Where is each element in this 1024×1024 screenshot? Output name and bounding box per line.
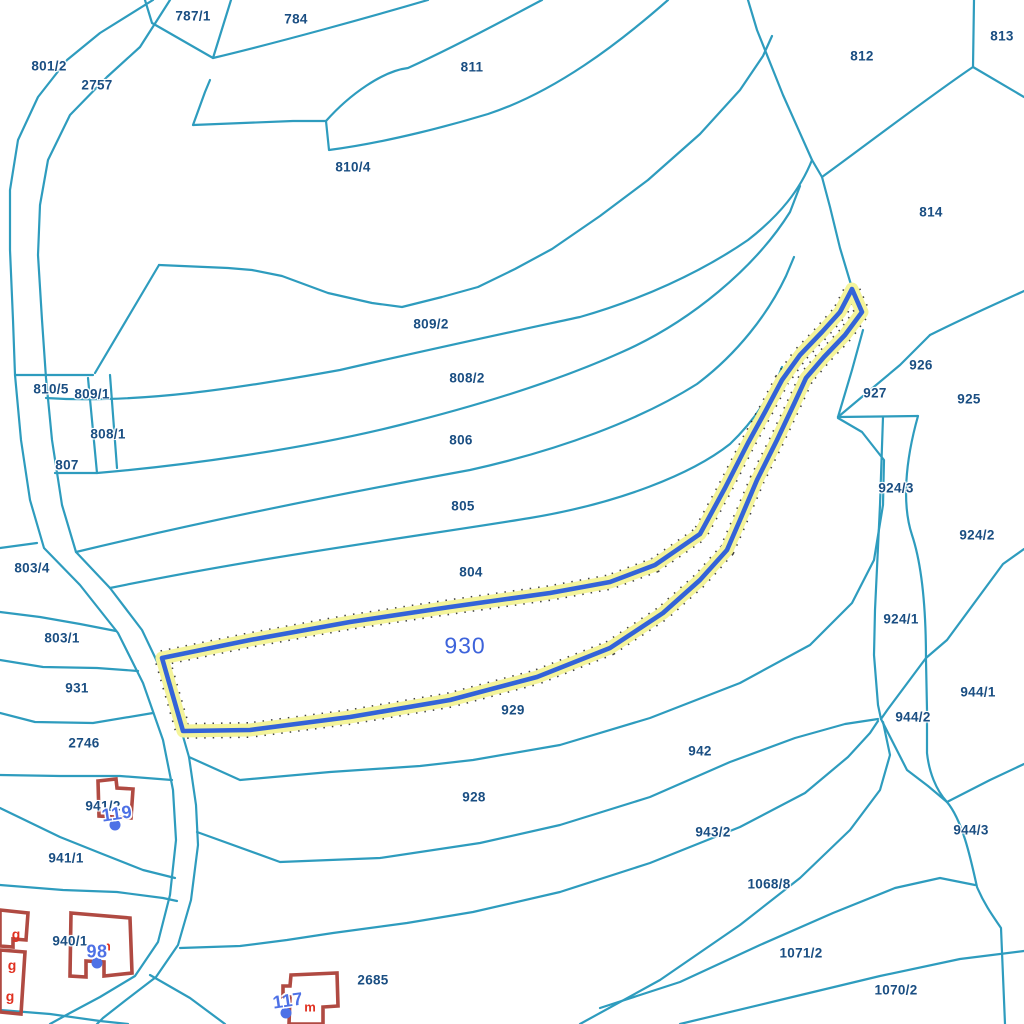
road-left-edge: [10, 0, 176, 1024]
parcel-boundary: [973, 0, 974, 67]
parcel-boundary: [159, 36, 772, 307]
parcel-boundary: [180, 721, 878, 948]
parcel-boundary-lines: [0, 0, 1024, 1024]
building-footprint: [0, 950, 25, 1014]
building-footprint: [283, 973, 338, 1024]
parcel-boundary: [0, 543, 37, 548]
parcel-boundary: [0, 713, 153, 723]
parcel-boundary: [580, 722, 890, 1024]
parcel-boundary: [930, 291, 1024, 335]
building-footprint: [98, 779, 133, 818]
parcel-boundary: [110, 375, 117, 468]
parcel-boundary: [213, 0, 428, 58]
cadastral-map-canvas[interactable]: mmggg787/1784801/22757811812813810/48148…: [0, 0, 1024, 1024]
parcel-boundary: [680, 951, 1024, 1024]
parcel-boundary: [838, 335, 930, 417]
parcel-boundary: [76, 257, 794, 552]
parcel-boundary: [881, 549, 1024, 719]
parcel-boundary: [874, 417, 883, 719]
building-footprint: [70, 913, 132, 977]
parcel-boundary: [197, 719, 878, 862]
parcel-boundary: [600, 878, 975, 1008]
parcel-boundary: [0, 775, 172, 780]
parcel-boundary: [748, 0, 852, 288]
map-vector-layer: [0, 0, 1024, 1024]
parcel-boundary: [822, 67, 973, 177]
parcel-boundary: [0, 808, 175, 878]
parcel-boundary: [193, 80, 210, 125]
parcel-boundary: [326, 0, 542, 121]
parcel-boundary: [947, 764, 1024, 802]
parcel-boundary: [150, 975, 225, 1024]
parcel-boundary: [110, 367, 782, 588]
parcel-boundary: [46, 160, 812, 399]
parcel-boundary: [193, 0, 668, 150]
parcel-boundary: [55, 186, 800, 473]
parcel-boundary: [145, 0, 231, 58]
parcel-boundary: [95, 265, 159, 373]
road-right-edge: [38, 0, 198, 1024]
parcel-boundary: [0, 612, 116, 631]
parcel-boundary: [88, 378, 97, 473]
parcel-boundary: [0, 885, 177, 901]
parcel-boundary: [0, 660, 138, 671]
parcel-boundary: [906, 416, 1005, 1024]
road-boundaries: [10, 0, 198, 1024]
parcel-boundary: [838, 416, 918, 417]
parcel-boundary: [973, 67, 1024, 97]
building-footprint: [0, 910, 28, 947]
